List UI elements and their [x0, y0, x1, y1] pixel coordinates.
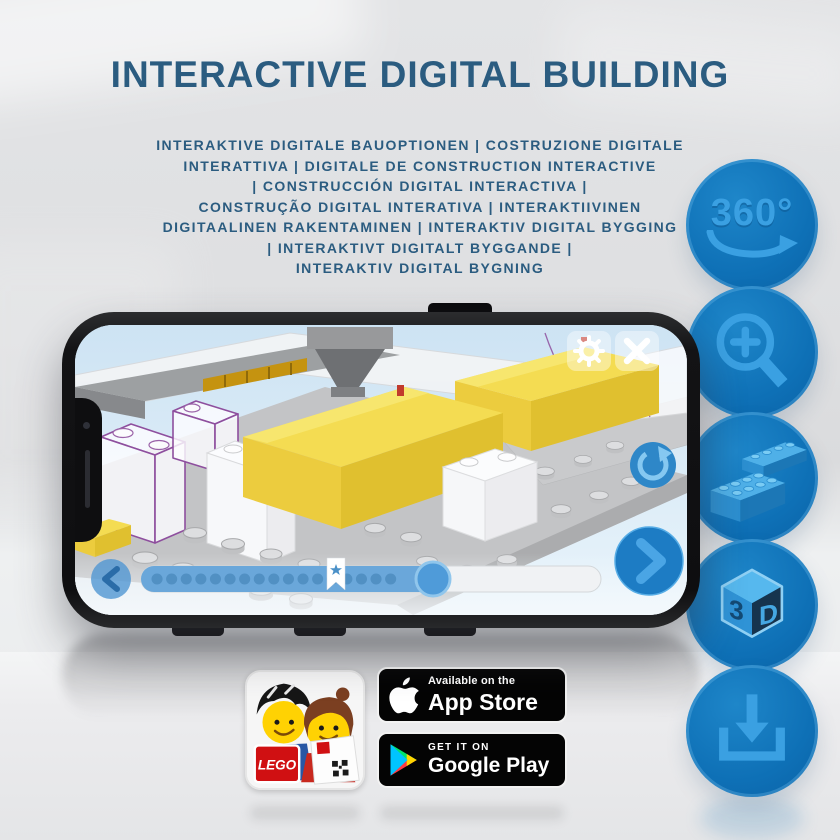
white-brick [443, 449, 537, 541]
subtitle-line: INTERAKTIVE DIGITALE BAUOPTIONEN | COSTR… [0, 135, 840, 156]
camera-dot [83, 422, 90, 429]
page-title: INTERACTIVE DIGITAL BUILDING [0, 54, 840, 96]
feature-reflection [700, 797, 804, 839]
apple-icon [389, 677, 419, 714]
slider-thumb[interactable] [416, 562, 450, 596]
360-label: 360° [711, 196, 794, 230]
3d-cube-icon: 3 D [694, 547, 810, 663]
google-play-tagline: GET IT ON [428, 743, 549, 754]
app-store-badge[interactable]: Available on the App Store [377, 667, 567, 723]
360-arrow-icon [702, 230, 802, 260]
app-screen [75, 325, 687, 615]
brick-bottom [711, 473, 786, 522]
boy-face [262, 701, 305, 744]
google-play-icon [389, 743, 419, 777]
feature-bricks [686, 412, 818, 544]
lego-app-art: LEGO [247, 672, 363, 788]
brick-plate-top [742, 442, 807, 477]
instruction-booklet [311, 736, 359, 784]
download-icon [697, 676, 807, 786]
speaker-slit [85, 450, 90, 508]
feature-360-rotation: 360° [686, 159, 818, 291]
lego-app-icon[interactable]: LEGO [245, 670, 365, 790]
google-play-badge[interactable]: GET IT ON Google Play [377, 732, 567, 788]
app-store-tagline: Available on the [428, 676, 538, 688]
settings-button[interactable] [567, 331, 611, 371]
lego-3d-scene [75, 325, 687, 615]
app-icon-reflection [250, 806, 360, 820]
prev-step-button[interactable] [91, 559, 131, 599]
promo-canvas: INTERACTIVE DIGITAL BUILDING INTERAKTIVE… [0, 0, 840, 840]
lego-logo-text: LEGO [258, 758, 297, 773]
next-step-button[interactable] [615, 527, 683, 595]
feature-3d-view: 3 D [686, 539, 818, 671]
zoom-in-icon [697, 297, 807, 407]
feature-download [686, 665, 818, 797]
red-accent [397, 385, 404, 396]
cube-3-label: 3 [729, 594, 744, 627]
bricks-icon [694, 420, 810, 536]
app-store-name: App Store [428, 690, 538, 714]
phone-notch [75, 398, 102, 542]
feature-zoom [686, 286, 818, 418]
close-button[interactable] [615, 331, 659, 371]
phone-mockup [62, 312, 700, 628]
lego-logo: LEGO [255, 745, 299, 782]
rotate-button[interactable] [630, 442, 676, 488]
google-play-name: Google Play [428, 755, 549, 777]
cube-d-label: D [759, 597, 778, 631]
badge-reflection [380, 806, 564, 820]
